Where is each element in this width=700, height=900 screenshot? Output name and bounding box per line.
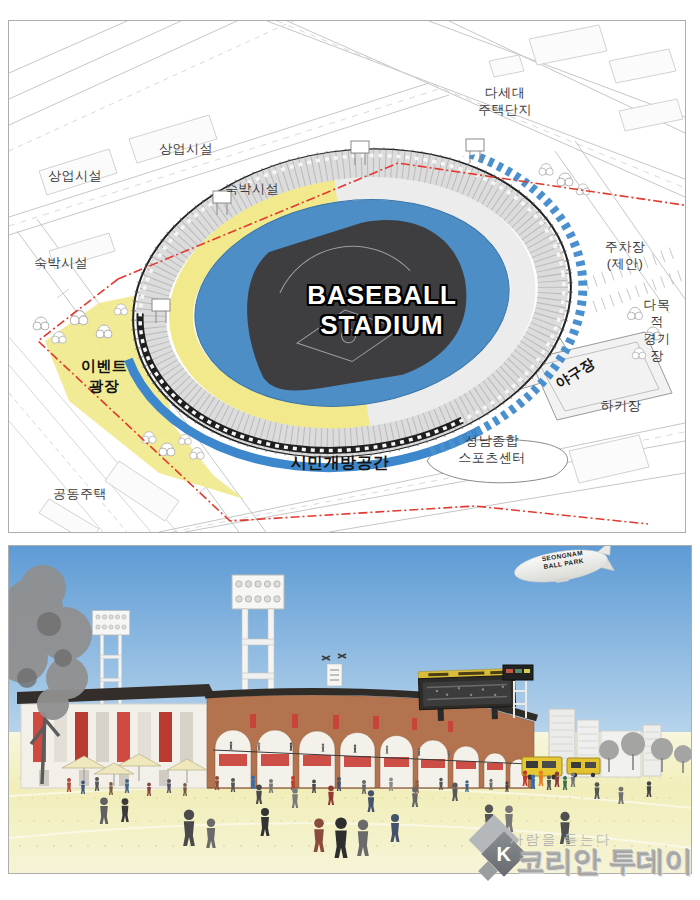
label-commercial-top: 상업시설 (159, 141, 213, 158)
label-lodging-left: 숙박시설 (34, 255, 88, 272)
label-hockey: 하키장 (601, 398, 642, 415)
label-sports-center: 성남종합 스포츠센터 (458, 433, 526, 467)
label-open-space: 시민개방공간 (291, 453, 390, 474)
label-multipurpose: 다목적 경기장 (643, 297, 671, 365)
news-graphic: 상업시설 상업시설 숙박시설 숙박시설 다세대 주택단지 주차장 (제안) 다목… (0, 0, 700, 900)
label-apartments: 공동주택 (53, 486, 107, 503)
label-event-plaza: 이벤트 광장 (81, 356, 128, 395)
label-parking: 주차장 (제안) (605, 239, 646, 273)
label-lodging-top: 숙박시설 (225, 181, 279, 198)
stadium-title: BASEBALL STADIUM (307, 281, 457, 341)
rendering-panel (8, 545, 692, 874)
stadium-rendering (9, 546, 691, 873)
label-multi-housing: 다세대 주택단지 (478, 85, 532, 119)
label-commercial-left: 상업시설 (48, 168, 102, 185)
site-plan-panel: 상업시설 상업시설 숙박시설 숙박시설 다세대 주택단지 주차장 (제안) 다목… (8, 20, 686, 533)
watermark-brand: 코리안 투데이 (517, 843, 693, 881)
